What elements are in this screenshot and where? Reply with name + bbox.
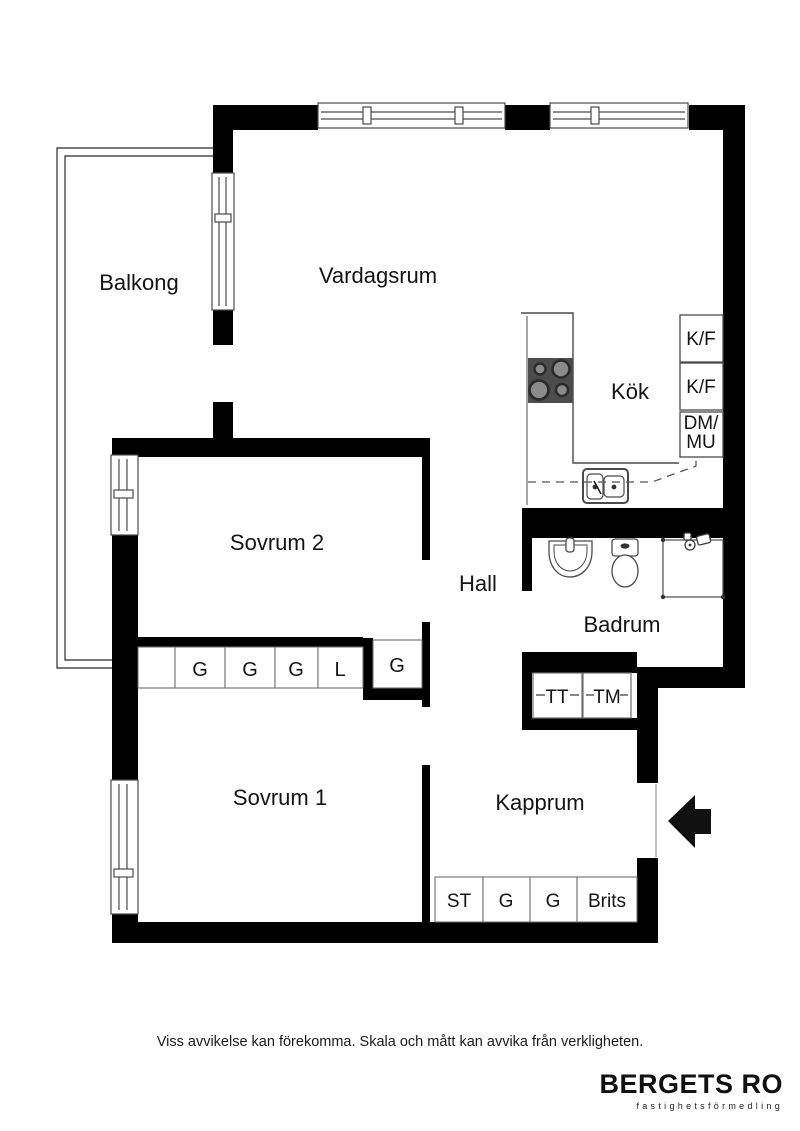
wall-segment: [637, 667, 745, 688]
kapprum-label-g1: G: [499, 891, 514, 912]
room-label-balkong: Balkong: [99, 270, 179, 295]
brand-name: BERGETS RO: [599, 1070, 783, 1098]
unit-label-tm: TM: [593, 687, 620, 708]
kapprum-label-st: ST: [447, 891, 472, 912]
wall-segment: [112, 532, 138, 782]
room-label-vardagsrum: Vardagsrum: [319, 263, 437, 288]
wall-segment: [522, 718, 637, 730]
walls: [112, 105, 745, 943]
wardrobe-label-g1: G: [192, 659, 208, 681]
window-livingroom-west: [212, 173, 234, 310]
wardrobe-label-g2: G: [242, 659, 258, 681]
room-label-sovrum2: Sovrum 2: [230, 530, 324, 555]
shower-icon: [661, 533, 725, 599]
window-sovrum2: [111, 455, 138, 535]
wall-segment: [505, 105, 550, 130]
wardrobe-cell-blank: [138, 647, 175, 688]
unit-label-kf2: K/F: [686, 377, 716, 398]
toilet-icon: [612, 539, 638, 587]
wall-segment: [422, 765, 430, 923]
window-top-2: [550, 103, 688, 128]
room-label-kok: Kök: [611, 379, 650, 404]
unit-label-mu: MU: [686, 432, 716, 453]
brand-tagline: fastighetsförmedling: [599, 1101, 783, 1111]
brand-logo: BERGETS RO fastighetsförmedling: [599, 1070, 783, 1111]
wall-segment: [112, 922, 658, 943]
disclaimer-text: Viss avvikelse kan förekomma. Skala och …: [0, 1034, 800, 1050]
room-label-sovrum1: Sovrum 1: [233, 785, 327, 810]
wall-segment: [522, 508, 745, 538]
balcony-inner-line: [65, 156, 213, 660]
wall-segment: [422, 452, 430, 560]
window-sovrum1: [111, 780, 138, 914]
unit-label-tt: TT: [545, 687, 569, 708]
unit-label-dm: DM/: [684, 413, 720, 434]
kitchen-fixtures: K/F K/F DM/ MU: [521, 313, 723, 505]
room-label-badrum: Badrum: [583, 612, 660, 637]
wall-segment: [723, 105, 745, 667]
bathroom-sink-icon: [549, 538, 592, 577]
wall-segment: [522, 652, 637, 673]
wall-segment: [213, 308, 233, 345]
kitchen-sink-icon: [583, 469, 628, 503]
wall-segment: [522, 538, 532, 591]
wall-segment: [112, 438, 430, 457]
stove-icon: [528, 358, 573, 403]
floorplan-drawing: K/F K/F DM/ MU: [0, 0, 800, 1131]
wall-segment: [363, 688, 430, 700]
floorplan-page: K/F K/F DM/ MU: [0, 0, 800, 1131]
entrance-arrow-icon: [668, 795, 711, 848]
room-label-kapprum: Kapprum: [495, 790, 584, 815]
wall-segment: [637, 858, 658, 923]
unit-label-kf1: K/F: [686, 329, 716, 350]
wardrobe-label-l: L: [334, 659, 345, 681]
kapprum-label-g2: G: [546, 891, 561, 912]
kapprum-label-brits: Brits: [588, 891, 626, 912]
hall-closet-label: G: [389, 655, 405, 677]
wall-segment: [213, 105, 233, 175]
room-label-hall: Hall: [459, 571, 497, 596]
wall-segment: [637, 688, 658, 783]
wardrobe-label-g3: G: [288, 659, 304, 681]
wall-segment: [138, 637, 363, 647]
window-top-1: [318, 103, 505, 128]
